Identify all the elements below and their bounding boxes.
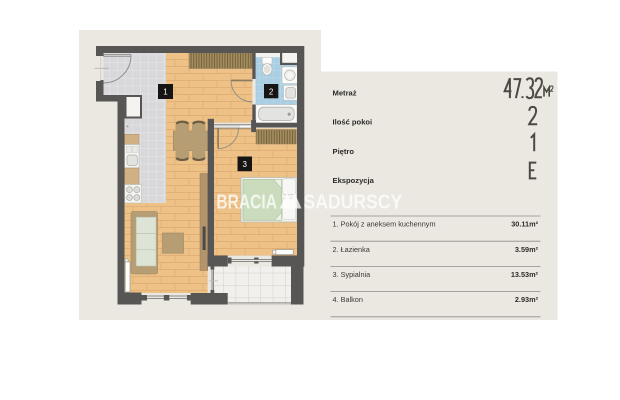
svg-text:SADURSCY: SADURSCY	[304, 190, 403, 212]
svg-text:Metraż: Metraż	[333, 89, 357, 98]
svg-text:Ilość pokoi: Ilość pokoi	[333, 117, 373, 126]
svg-text:3: 3	[242, 160, 247, 169]
svg-text:2: 2	[269, 87, 274, 96]
svg-text:2. Łazienka: 2. Łazienka	[333, 245, 371, 254]
svg-text:1: 1	[163, 88, 168, 97]
svg-text:3.59m²: 3.59m²	[515, 245, 539, 254]
svg-text:13.53m²: 13.53m²	[511, 270, 539, 279]
svg-text:Ekspozycja: Ekspozycja	[333, 176, 375, 185]
svg-text:4. Balkon: 4. Balkon	[333, 295, 363, 304]
svg-text:3. Sypialnia: 3. Sypialnia	[333, 270, 372, 279]
svg-text:1. Pokój z aneksem kuchennym: 1. Pokój z aneksem kuchennym	[333, 220, 436, 229]
svg-text:2.93m²: 2.93m²	[515, 295, 539, 304]
svg-text:BRACIA: BRACIA	[216, 191, 277, 213]
svg-text:Piętro: Piętro	[333, 147, 355, 156]
svg-text:30.11m²: 30.11m²	[511, 220, 538, 229]
